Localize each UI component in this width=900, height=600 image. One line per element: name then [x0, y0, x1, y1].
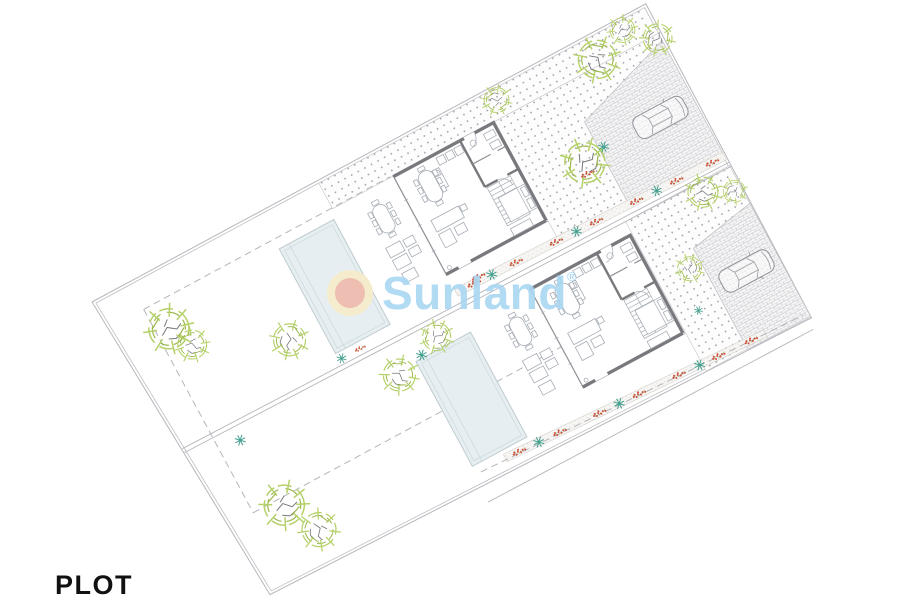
site-plan-drawing	[0, 0, 900, 600]
rotated-plot-group	[89, 0, 835, 600]
plot-label: PLOT	[55, 570, 133, 600]
page: Sunland® PLOT	[0, 0, 900, 600]
